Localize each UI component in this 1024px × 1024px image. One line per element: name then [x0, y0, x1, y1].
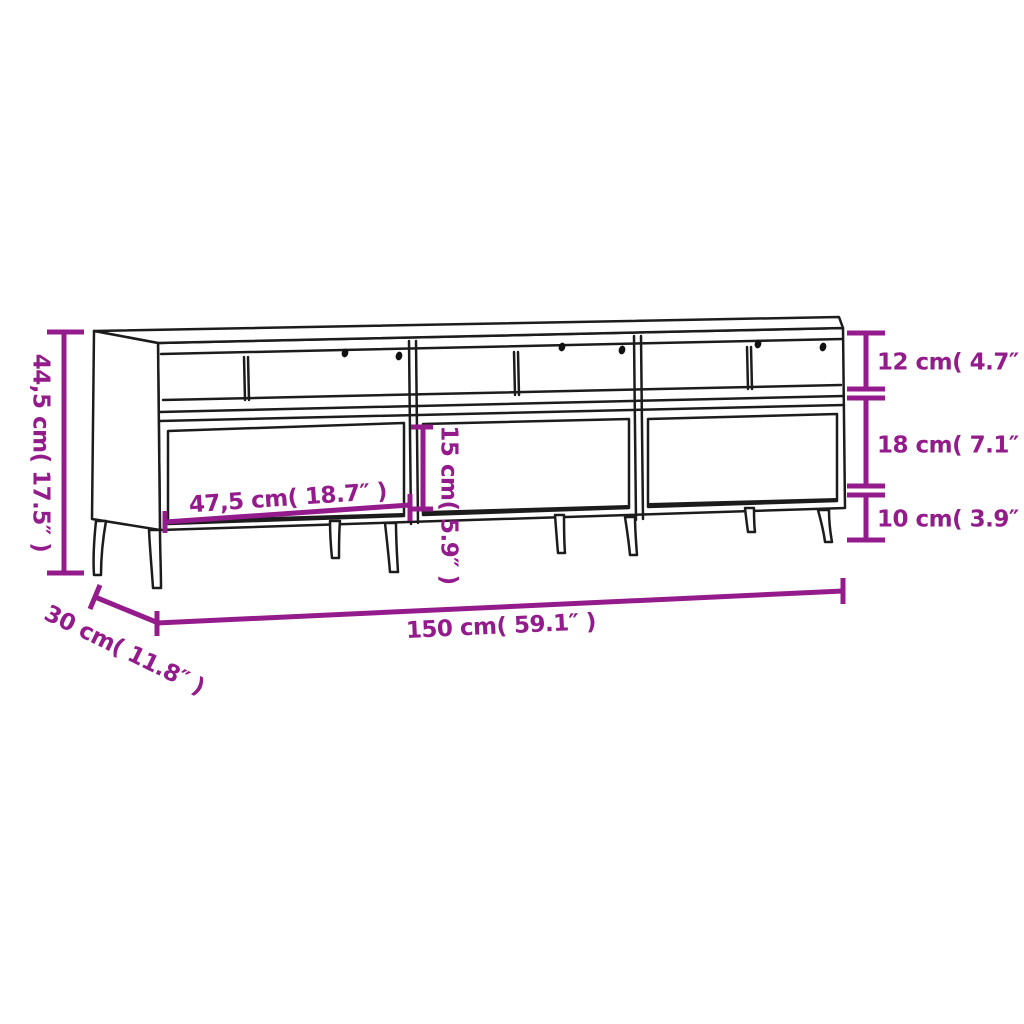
leg: [149, 530, 161, 588]
compartment-height-label: 12 cm( 4.7″ ): [877, 352, 1024, 375]
leg-height-label: 10 cm( 3.9″ ): [877, 509, 1024, 532]
cabinet-left-face: [92, 331, 160, 530]
leg: [94, 521, 106, 575]
leg: [385, 523, 398, 572]
leg: [555, 515, 565, 553]
drawer-front-right: [648, 414, 837, 507]
tv-cabinet-line-drawing: [0, 0, 1024, 1024]
dimension-overall-depth: [90, 585, 156, 622]
leg: [745, 508, 755, 532]
leg: [625, 517, 637, 555]
leg: [818, 510, 832, 542]
drawer-front-height-label: 15 cm( 5.9″ ): [437, 425, 460, 584]
leg: [330, 521, 340, 558]
dimension-diagram: 44,5 cm( 17.5″ ) 12 cm( 4.7″ ) 18 cm( 7.…: [0, 0, 1024, 1024]
overall-height-label: 44,5 cm( 17.5″ ): [29, 354, 52, 552]
drawer-height-label: 18 cm( 7.1″ ): [877, 435, 1024, 458]
cabinet: [92, 317, 845, 588]
